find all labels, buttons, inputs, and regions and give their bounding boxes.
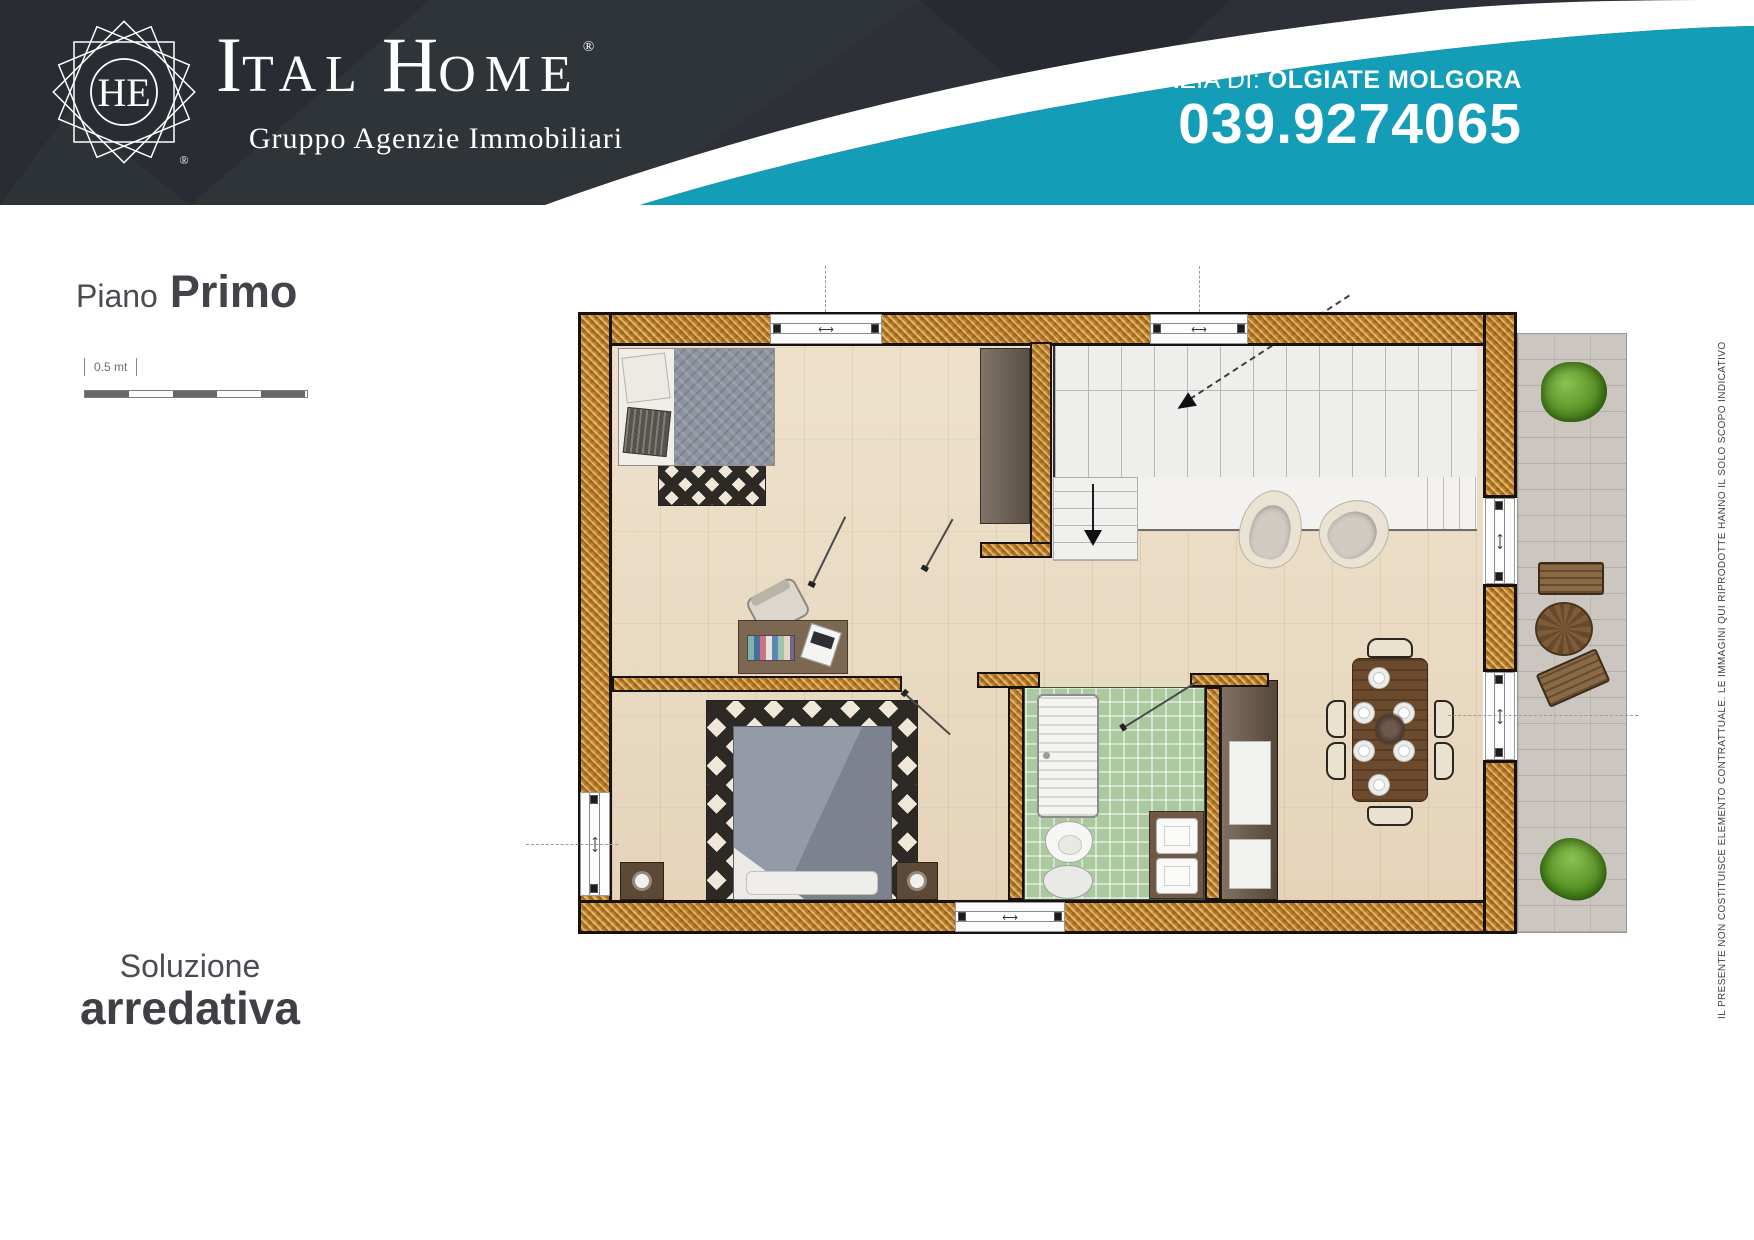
dining-chair (1367, 806, 1413, 826)
brand-letter: I (216, 26, 242, 104)
agency-info: AGENZIA DI: OLGIATE MOLGORA 039.9274065 (1108, 66, 1522, 155)
nightstand (896, 862, 938, 900)
window-north-2: ⟷ (1150, 314, 1248, 344)
armchair-seat (1320, 503, 1385, 567)
toilet (1043, 865, 1093, 899)
axis-reference-line (1199, 266, 1200, 312)
brand-letters: OME (438, 49, 581, 101)
shower (1037, 694, 1099, 818)
wall-east-segment (1483, 312, 1517, 498)
wall-bathroom-north-west (977, 672, 1040, 688)
solution-line1: Soluzione (30, 948, 350, 985)
svg-text:HE: HE (97, 70, 150, 115)
brand-wordmark: ITALHOME® (216, 26, 696, 104)
window-north-1: ⟷ (770, 314, 882, 344)
bed-pillow (623, 407, 672, 457)
wall-bedroom1-east (1030, 342, 1052, 556)
scale-label: 0.5 mt (84, 358, 137, 376)
bed-pillows (746, 871, 878, 895)
floor-name: Primo (170, 266, 298, 318)
axis-reference-line (1448, 715, 1638, 716)
floorplan: ⟷ ⟷ ⟷ ⟷ ⟷ ⟷ (578, 312, 1638, 982)
agency-label: AGENZIA DI: (1108, 66, 1268, 94)
bedroom1-desk (738, 620, 848, 674)
stair-landing (1138, 477, 1477, 531)
armchair-seat (1245, 501, 1296, 563)
wall-north (578, 312, 1517, 346)
bedroom1-wardrobe (980, 348, 1030, 524)
plate (1353, 702, 1375, 724)
bathroom (1024, 687, 1205, 900)
stair-direction-line (1092, 484, 1094, 532)
brand-letter: H (382, 26, 438, 104)
bed-pillow (621, 352, 670, 403)
kitchen-appliance (1229, 839, 1271, 889)
scale-bar (84, 390, 308, 398)
wall-bedroom1-east-return (980, 542, 1052, 558)
dining-chair (1434, 700, 1454, 738)
notebook (800, 623, 842, 667)
wall-east-segment (1483, 760, 1517, 934)
sink (1156, 818, 1198, 854)
plate (1353, 740, 1375, 762)
wall-bathroom-north-east (1190, 673, 1269, 687)
wall-bedrooms-partition (612, 676, 902, 692)
terrace-table (1535, 602, 1593, 656)
plate (1368, 667, 1390, 689)
registered-mark: ® (583, 39, 594, 56)
dining-chair (1326, 742, 1346, 780)
svg-text:®: ® (179, 153, 188, 167)
dining-chair (1326, 700, 1346, 738)
italhome-rosette-logo-icon: HE ® (44, 12, 204, 172)
scale-indicator: 0.5 mt (84, 358, 308, 398)
floor-label: Piano (76, 278, 158, 315)
floor-title: Piano Primo (76, 266, 297, 318)
agency-name: OLGIATE MOLGORA (1268, 66, 1522, 94)
legal-disclaimer: IL PRESENTE NON COSTITUISCE ELEMENTO CON… (1717, 330, 1728, 1030)
table-centerpiece (1375, 712, 1405, 746)
brand-letters: TAL (242, 49, 366, 101)
french-door-east-1: ⟷ (1485, 498, 1515, 584)
wall-bathroom-west (1008, 687, 1024, 900)
wall-east-segment (1483, 584, 1517, 672)
kitchen-counter (1221, 680, 1278, 900)
terrace-chair (1538, 562, 1604, 595)
header-banner: HE ® ITALHOME® Gruppo Agenzie Immobiliar… (0, 0, 1754, 205)
bidet (1045, 821, 1093, 863)
sink (1156, 858, 1198, 894)
stair-down-arrow-icon (1084, 530, 1102, 546)
axis-reference-line (825, 266, 826, 312)
plate (1368, 774, 1390, 796)
bedroom1-bed (618, 348, 775, 466)
bedroom2-bed (733, 726, 892, 900)
brand-tagline: Gruppo Agenzie Immobiliari (216, 122, 656, 156)
wall-bathroom-east (1205, 687, 1221, 900)
solution-line2: arredativa (30, 981, 350, 1035)
staircase-lower-flight (1053, 477, 1138, 561)
french-door-east-2: ⟷ (1485, 672, 1515, 760)
books (747, 635, 795, 661)
window-south: ⟷ (955, 902, 1065, 932)
stair-railing (1427, 477, 1477, 529)
solution-caption: Soluzione arredativa (30, 948, 350, 1035)
bed-duvet (674, 349, 774, 465)
bathroom-counter (1149, 811, 1204, 899)
dining-chair (1434, 742, 1454, 780)
agency-phone: 039.9274065 (1108, 95, 1522, 155)
dining-chair (1367, 638, 1413, 658)
nightstand (620, 862, 664, 900)
axis-reference-line (526, 844, 618, 845)
agency-location: AGENZIA DI: OLGIATE MOLGORA (1108, 66, 1522, 95)
kitchen-appliance (1229, 741, 1271, 825)
staircase (1053, 346, 1477, 477)
